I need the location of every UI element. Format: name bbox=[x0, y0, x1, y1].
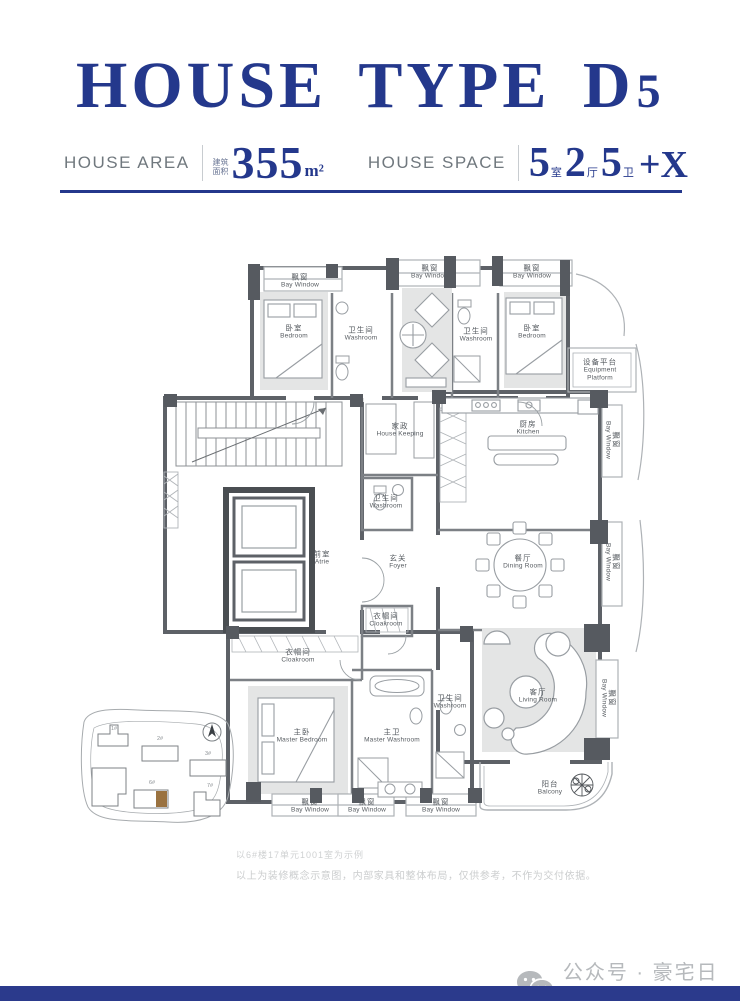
room-label: 衣帽间Cloakroom bbox=[281, 648, 314, 665]
disclaimer: 以6#楼17单元1001室为示例 以上为装修概念示意图，内部家具和整体布局，仅供… bbox=[236, 848, 596, 882]
area-unit: m² bbox=[305, 161, 324, 181]
header-rule bbox=[60, 190, 682, 193]
building-label: 1# bbox=[111, 726, 117, 732]
room-label: 卫生间Washroom bbox=[370, 494, 403, 511]
house-area-group: HOUSE AREA 建筑面积 355 m² bbox=[64, 140, 324, 186]
room-label: 飘窗Bay Window bbox=[422, 798, 460, 815]
room-label: 卫生间Washroom bbox=[434, 694, 467, 711]
room-label: 阳台Balcony bbox=[538, 780, 563, 797]
house-type-poster: HOUSE TYPE D5 HOUSE AREA 建筑面积 355 m² HOU… bbox=[0, 0, 740, 1001]
room-label: 飘窗Bay Window bbox=[604, 421, 621, 459]
room-label: 前室Atrie bbox=[314, 550, 331, 567]
room-label: 设备平台Equipment Platform bbox=[571, 358, 629, 383]
room-label: 卫生间Washroom bbox=[460, 327, 493, 344]
bottom-bar bbox=[0, 986, 740, 1001]
room-label: 厨房Kitchen bbox=[516, 420, 539, 437]
divider bbox=[202, 145, 203, 181]
space-number: 5 bbox=[601, 142, 622, 184]
space-unit: 卫 bbox=[623, 164, 634, 180]
site-map: 1#2#3#6#7# bbox=[78, 702, 236, 830]
title-digit: 5 bbox=[637, 64, 661, 119]
building-label: 6# bbox=[149, 780, 155, 786]
room-label: 衣帽间Cloakroom bbox=[369, 612, 402, 629]
house-space-group: HOUSE SPACE 5室2厅5卫+X bbox=[368, 142, 688, 184]
space-unit: 厅 bbox=[587, 164, 598, 180]
room-label: 卧室Bedroom bbox=[518, 324, 546, 341]
disclaimer-line1: 以6#楼17单元1001室为示例 bbox=[236, 848, 596, 861]
room-label: 飘窗Bay Window bbox=[348, 798, 386, 815]
room-label: 家政House Keeping bbox=[376, 422, 423, 439]
room-label: 玄关Foyer bbox=[389, 554, 407, 571]
space-unit: 室 bbox=[551, 164, 562, 180]
room-label: 主卧Master Bedroom bbox=[277, 728, 328, 745]
room-label: 飘窗Bay Window bbox=[281, 273, 319, 290]
divider bbox=[518, 145, 519, 181]
disclaimer-line2: 以上为装修概念示意图，内部家具和整体布局，仅供参考，不作为交付依据。 bbox=[236, 867, 596, 882]
building-label: 3# bbox=[205, 751, 211, 757]
room-label: 飘窗Bay Window bbox=[291, 798, 329, 815]
room-label: 飘窗Bay Window bbox=[600, 679, 617, 717]
house-space-label: HOUSE SPACE bbox=[368, 153, 506, 173]
house-space-value: 5室2厅5卫+X bbox=[529, 142, 688, 184]
building-label: 7# bbox=[207, 783, 213, 789]
room-label: 飘窗Bay Window bbox=[513, 264, 551, 281]
space-suffix: +X bbox=[639, 146, 688, 184]
space-number: 5 bbox=[529, 142, 550, 184]
room-label: 飘窗Bay Window bbox=[411, 264, 449, 281]
room-label: 客厅Living Room bbox=[519, 688, 557, 705]
room-label: 主卫Master Washroom bbox=[364, 728, 420, 745]
area-prefix: 建筑面积 bbox=[213, 158, 230, 176]
page-title: HOUSE TYPE D5 bbox=[76, 48, 661, 124]
title-text: HOUSE TYPE D bbox=[76, 48, 635, 124]
room-label: 飘窗Bay Window bbox=[604, 543, 621, 581]
spec-row: HOUSE AREA 建筑面积 355 m² HOUSE SPACE 5室2厅5… bbox=[64, 136, 688, 190]
room-label: 卫生间Washroom bbox=[345, 326, 378, 343]
area-value: 355 bbox=[232, 140, 304, 186]
building-label: 2# bbox=[157, 736, 163, 742]
room-label: 餐厅Dining Room bbox=[503, 554, 543, 571]
room-label: 卧室Bedroom bbox=[280, 324, 308, 341]
space-number: 2 bbox=[565, 142, 586, 184]
site-map-labels: 1#2#3#6#7# bbox=[78, 702, 236, 830]
house-area-label: HOUSE AREA bbox=[64, 153, 190, 173]
